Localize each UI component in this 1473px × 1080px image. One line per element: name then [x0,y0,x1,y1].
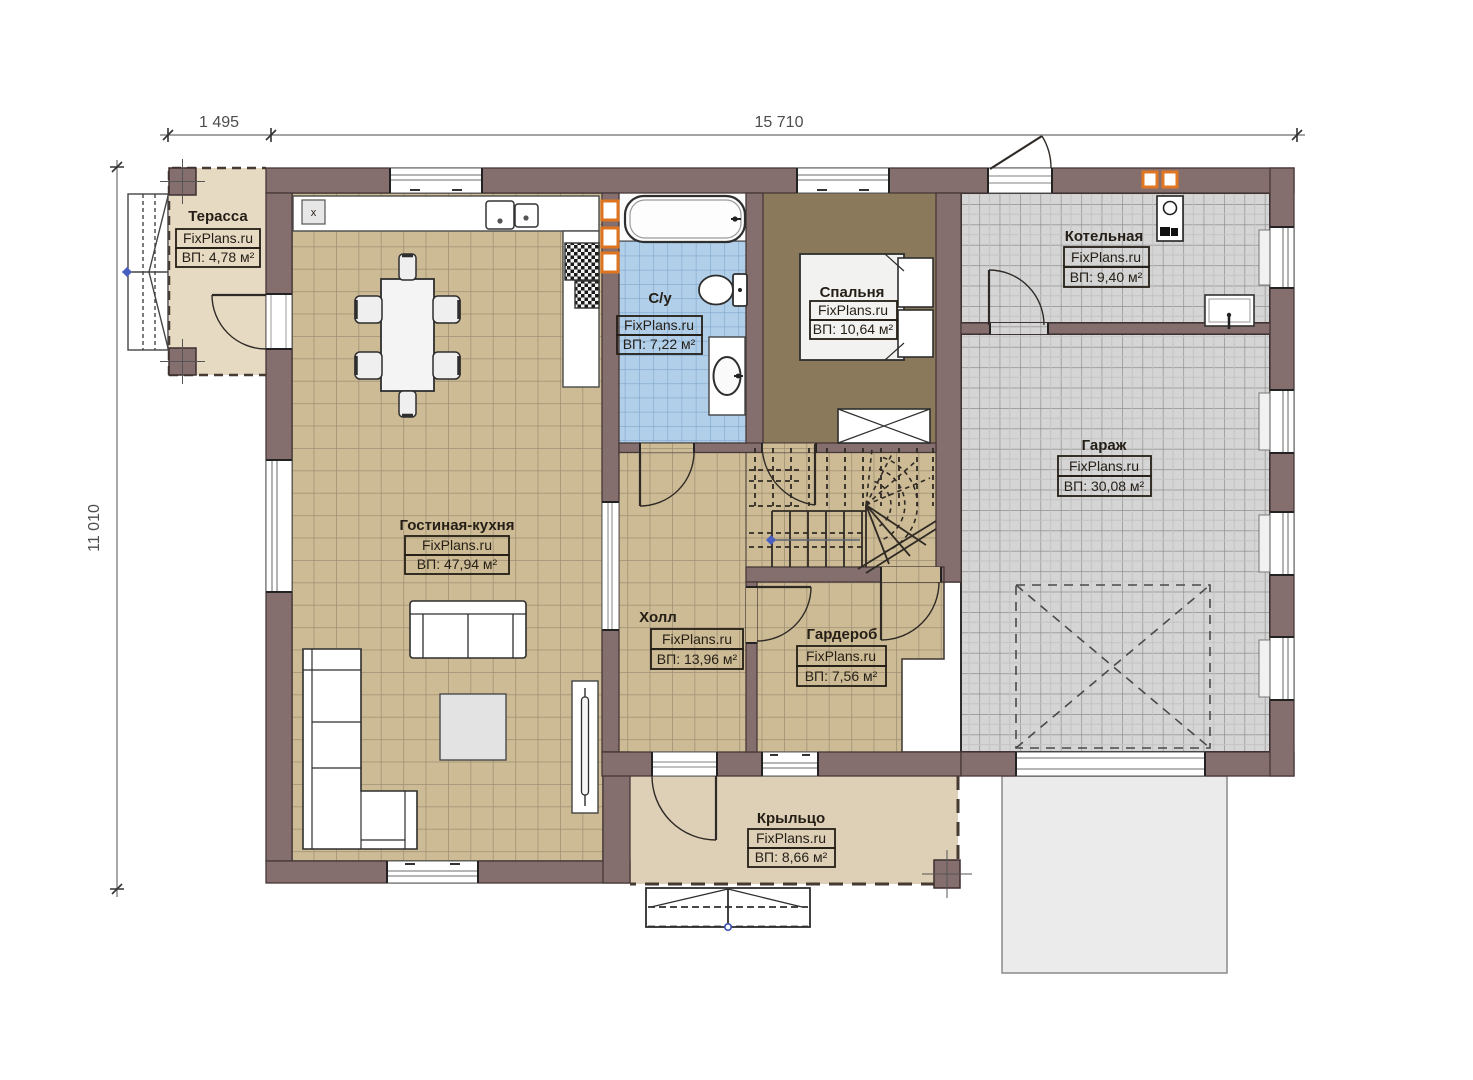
svg-text:Гардероб: Гардероб [807,626,878,643]
svg-text:Терасса: Терасса [188,208,248,225]
svg-text:ВП: 10,64 м²: ВП: 10,64 м² [813,321,894,337]
svg-text:С/у: С/у [648,290,672,307]
svg-text:Гостиная-кухня: Гостиная-кухня [400,517,515,534]
svg-text:FixPlans.ru: FixPlans.ru [662,631,732,647]
svg-text:Холл: Холл [639,609,677,626]
svg-text:ВП: 47,94 м²: ВП: 47,94 м² [417,556,498,572]
svg-text:ВП: 7,22 м²: ВП: 7,22 м² [623,336,696,352]
svg-text:FixPlans.ru: FixPlans.ru [1071,249,1141,265]
svg-text:Крыльцо: Крыльцо [757,810,825,827]
svg-text:FixPlans.ru: FixPlans.ru [756,830,826,846]
svg-text:FixPlans.ru: FixPlans.ru [422,537,492,553]
svg-text:ВП: 13,96 м²: ВП: 13,96 м² [657,651,738,667]
svg-text:x: x [311,207,317,219]
svg-text:15 710: 15 710 [755,114,804,131]
svg-text:ВП: 8,66 м²: ВП: 8,66 м² [755,849,828,865]
svg-text:1 495: 1 495 [199,114,239,131]
svg-text:ВП: 4,78 м²: ВП: 4,78 м² [182,249,255,265]
svg-text:Гараж: Гараж [1082,437,1127,454]
svg-text:ВП: 7,56 м²: ВП: 7,56 м² [805,668,878,684]
svg-text:Котельная: Котельная [1065,228,1144,245]
svg-text:Спальня: Спальня [820,284,885,301]
svg-text:ВП: 30,08 м²: ВП: 30,08 м² [1064,478,1145,494]
svg-text:FixPlans.ru: FixPlans.ru [818,302,888,318]
svg-text:ВП: 9,40 м²: ВП: 9,40 м² [1070,269,1143,285]
svg-text:FixPlans.ru: FixPlans.ru [1069,458,1139,474]
svg-text:FixPlans.ru: FixPlans.ru [624,317,694,333]
svg-text:11 010: 11 010 [86,504,103,552]
svg-text:FixPlans.ru: FixPlans.ru [806,648,876,664]
svg-text:FixPlans.ru: FixPlans.ru [183,230,253,246]
